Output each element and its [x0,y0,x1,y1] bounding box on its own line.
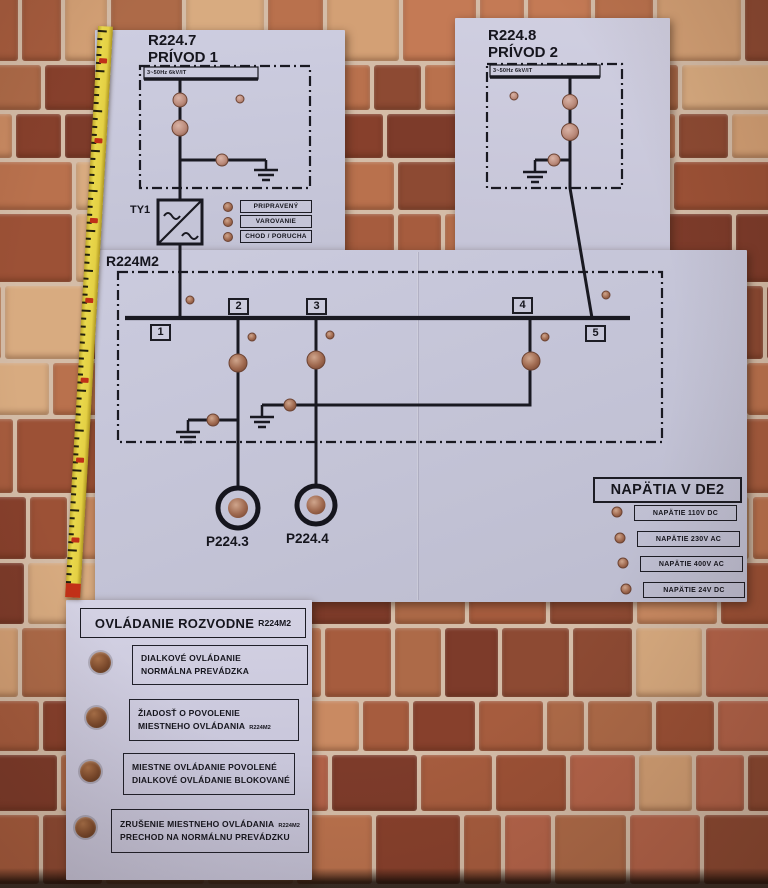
floor-tile [421,755,492,811]
tape-tick [88,206,93,208]
control-lamp-hole [80,761,101,782]
control-row-line1: MIESTNE OVLÁDANIE POVOLENÉ [132,761,294,774]
floor-tile [639,755,692,811]
control-lamp-hole [75,817,96,838]
tape-tick [69,533,74,535]
floor-tile [0,563,24,624]
tape-tick [87,214,92,216]
indicator-label: PRIPRAVENÝ [240,200,312,213]
voltage-legend-item: NAPÄTIE 400V AC [640,556,743,572]
earth-symbol [523,160,547,182]
tape-decimeter-mark [71,537,79,542]
tape-tick [79,357,84,359]
tape-tick [90,158,95,160]
floor-tile [395,628,441,697]
floor-tile [0,114,12,158]
voltage-legend-item: NAPÄTIE 24V DC [643,582,745,598]
floor-tile [22,0,60,61]
control-row-line1: ZRUŠENIE MIESTNEHO OVLÁDANIAR224M2 [120,818,308,831]
incomer1-name: PRÍVOD 1 [148,49,218,66]
voltage-legend-title: NAPÄTIA V DE2 [593,477,742,503]
control-row-line2: NORMÁLNA PREVÁDZKA [141,665,307,678]
photo-of-mimic-panels: { "main_panel": { "incomer1": { "code": … [0,0,768,888]
floor-tile [718,701,768,751]
incomer2-rating: 3~50Hz 6kV/IT [493,68,532,74]
tape-tick [94,102,99,104]
tape-tick [71,493,76,495]
ac-wave-icon [182,233,198,239]
tape-tick [70,517,75,519]
transformer-label: TY1 [130,204,150,216]
tape-tick [89,174,94,176]
tape-tick [80,341,85,343]
tape-tick [68,549,77,551]
floor-tile [636,628,702,697]
tape-tick [71,501,76,503]
floor-tile [332,755,417,811]
ac-wave-icon [164,213,180,219]
floor-tile [0,419,13,493]
tape-tick [67,557,72,559]
floor-tile [656,701,715,751]
control-panel-title: OVLÁDANIE ROZVODNE R224M2 [80,608,306,638]
tape-tick [93,110,102,112]
floor-tile [445,628,498,697]
floor-tile [325,628,391,697]
tape-tick [85,246,90,248]
tape-tick [83,278,88,280]
tape-tick [72,477,77,479]
control-row-label: ŽIADOSŤ O POVOLENIE MIESTNEHO OVLÁDANIAR… [129,699,299,741]
control-row-line2: MIESTNEHO OVLÁDANIAR224M2 [138,720,298,733]
floor-tile [0,628,18,697]
tape-decimeter-mark [81,378,89,383]
tape-tick [86,238,91,240]
incomer1-rating: 3~50Hz 6kV/IT [147,70,186,76]
floor-tile [0,286,1,359]
floor-tile [413,701,475,751]
feeder-terminals [218,486,335,528]
tape-tick [84,262,89,264]
floor-tile [588,701,652,751]
control-row-line2: PRECHOD NA NORMÁLNU PREVÁDZKU [120,831,308,844]
bay-number-4: 4 [512,297,533,314]
incomer2-code: R224.8 [488,27,536,44]
tape-tick [83,293,88,295]
tape-tick [71,485,76,487]
tape-tick [75,421,80,423]
tape-tick [67,565,72,567]
tape-tick [95,78,100,80]
tape-tick [88,198,93,200]
tape-decimeter-mark [90,218,98,223]
tape-tick [90,166,95,168]
tape-tick [82,309,91,311]
tape-decimeter-mark [94,138,102,143]
tape-tick [69,525,74,527]
feeder-label: P224.3 [206,534,249,549]
tape-tick [73,453,78,455]
tape-tick [70,509,79,511]
control-row-label: MIESTNE OVLÁDANIE POVOLENÉ DIALKOVÉ OVLÁ… [123,753,295,795]
tape-tick [95,86,100,88]
tape-tick [92,134,97,136]
control-lamp-hole [90,652,111,673]
tape-tick [95,70,104,72]
tape-tick [66,573,71,575]
tape-tick [85,254,90,256]
tape-tick [96,54,101,56]
control-panel: OVLÁDANIE ROZVODNE R224M2 DIALKOVÉ OVLÁD… [66,600,312,880]
tape-tick [74,437,79,439]
floor-tile [547,701,584,751]
control-panel-title-text: OVLÁDANIE ROZVODNE [95,616,254,631]
tape-tick [84,270,93,272]
tape-tick [77,389,86,391]
floor-tile [696,755,744,811]
voltage-legend-item: NAPÄTIE 110V DC [634,505,737,521]
bay-number-3: 3 [306,298,327,315]
control-lamp-hole [86,707,107,728]
tape-tick [94,94,99,96]
control-panel-title-code: R224M2 [258,618,291,628]
tape-tick [79,349,88,351]
control-row-line1: ŽIADOSŤ O POVOLENIE [138,707,298,720]
control-row-line2: DIALKOVÉ OVLÁDANIE BLOKOVANÉ [132,774,294,787]
tape-tick [80,333,85,335]
voltage-legend-item: NAPÄTIE 230V AC [637,531,740,547]
floor-tile [706,628,768,697]
floor-tile [496,755,567,811]
floor-tile [0,701,39,751]
floor-tile [0,0,18,61]
tape-tick [77,397,82,399]
control-row-label: DIALKOVÉ OVLÁDANIE NORMÁLNA PREVÁDZKA [132,645,308,685]
earth-symbol [254,160,278,180]
mimic-panel-assembly: R224.7 PRÍVOD 1 3~50Hz 6kV/IT R224.8 PRÍ… [60,10,760,602]
control-row-line1: DIALKOVÉ OVLÁDANIE [141,652,307,665]
floor-tile [0,65,41,109]
earth-symbol [176,420,200,442]
incomer1-symbols [140,66,310,200]
bay-number-2: 2 [228,298,249,315]
tape-tick [74,445,79,447]
switchboard-symbols [118,272,662,488]
floor-tile [16,114,61,158]
floor-tile [502,628,569,697]
tape-tick [78,365,83,367]
tape-tick [76,405,81,407]
tape-tick [78,373,83,375]
incomer1-code: R224.7 [148,32,196,49]
tape-tick [89,190,98,192]
tape-tick [75,429,84,431]
tape-tick [92,126,97,128]
measuring-tape-end [65,583,81,598]
floor-tile [570,755,634,811]
converter-ty1-symbol [158,200,202,318]
incomer2-name: PRÍVOD 2 [488,44,558,61]
tape-decimeter-mark [99,58,107,63]
earth-symbol [250,405,274,427]
floor-tile [573,628,632,697]
tape-tick [86,230,95,232]
floor-tile [0,363,49,414]
tape-tick [76,413,81,415]
tape-tick [91,150,100,152]
tape-tick [93,118,98,120]
tape-tick [81,317,86,319]
tape-tick [83,286,88,288]
floor-tile [479,701,543,751]
indicator-label: CHOD / PORUCHA [240,230,312,243]
floor-tile [748,755,768,811]
tape-tick [98,30,107,32]
tape-tick [81,325,86,327]
tape-decimeter-mark [85,298,93,303]
tape-tick [97,46,102,48]
tape-tick [66,581,71,583]
indicator-label: VAROVANIE [240,215,312,228]
control-row-label: ZRUŠENIE MIESTNEHO OVLÁDANIAR224M2 PRECH… [111,809,309,853]
bay-number-5: 5 [585,325,606,342]
tape-decimeter-mark [76,457,84,462]
floor-tile [363,701,408,751]
floor-tile [0,755,57,811]
tape-tick [89,182,94,184]
feeder-label: P224.4 [286,531,329,546]
switchboard-label: R224M2 [106,253,159,269]
incomer2-symbols [487,64,622,318]
lamp-holes [172,92,631,594]
floor-tile [0,497,26,559]
bay-number-1: 1 [150,324,171,341]
tape-tick [72,469,81,471]
tape-tick [97,38,102,40]
